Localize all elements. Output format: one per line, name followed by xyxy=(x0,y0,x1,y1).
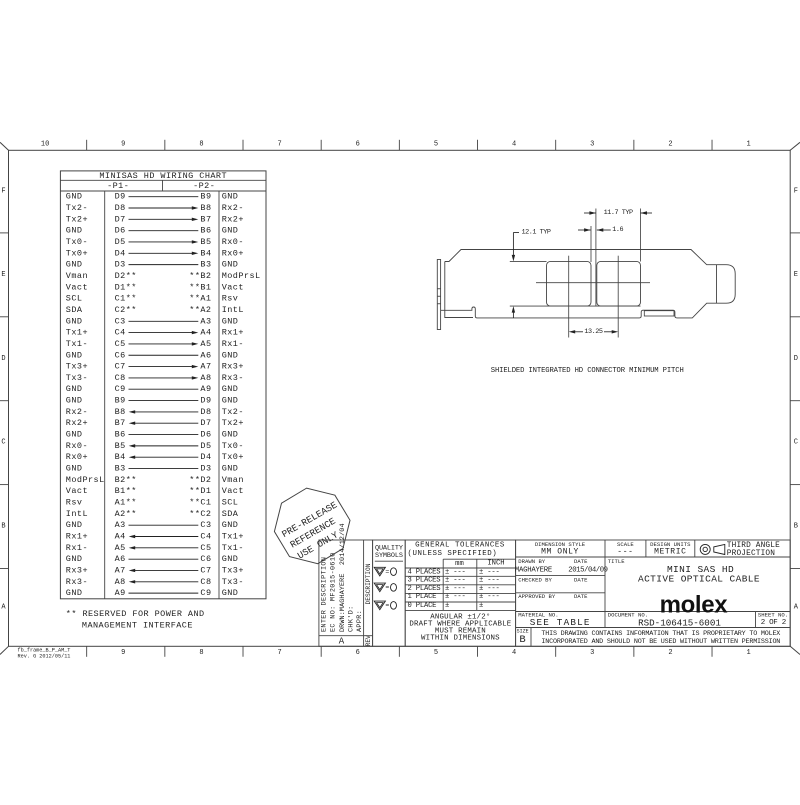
svg-text:WITHIN DIMENSIONS: WITHIN DIMENSIONS xyxy=(421,635,500,643)
svg-text:± ---: ± --- xyxy=(445,593,466,601)
svg-text:Tx2-: Tx2- xyxy=(222,407,244,417)
svg-text:9: 9 xyxy=(121,140,125,148)
svg-text:D9: D9 xyxy=(200,396,211,406)
svg-text:SCL: SCL xyxy=(66,294,83,304)
svg-text:GND: GND xyxy=(222,554,239,564)
svg-text:Tx3+: Tx3+ xyxy=(222,565,244,575)
svg-text:Rx2+: Rx2+ xyxy=(66,418,88,428)
svg-text:Tx0+: Tx0+ xyxy=(66,248,88,258)
svg-text:11.7 TYP: 11.7 TYP xyxy=(604,209,633,217)
svg-text:2 PLACES: 2 PLACES xyxy=(408,585,441,593)
svg-text:=: = xyxy=(385,602,389,609)
svg-text:F: F xyxy=(1,188,5,196)
svg-text:GND: GND xyxy=(222,260,239,270)
svg-text:Tx1-: Tx1- xyxy=(222,543,244,553)
svg-text:GND: GND xyxy=(222,226,239,236)
svg-text:A7: A7 xyxy=(200,362,211,372)
svg-text:± ---: ± --- xyxy=(479,576,500,584)
svg-text:A3: A3 xyxy=(200,316,211,326)
svg-text:Vman: Vman xyxy=(66,271,88,281)
svg-text:B5: B5 xyxy=(115,441,126,451)
svg-text:A4: A4 xyxy=(115,531,126,541)
svg-text:GND: GND xyxy=(66,554,83,564)
svg-text:7: 7 xyxy=(277,140,281,148)
svg-text:C: C xyxy=(794,439,798,447)
svg-text:Tx0+: Tx0+ xyxy=(222,452,244,462)
svg-text:A3: A3 xyxy=(115,520,126,530)
svg-text:TITLE: TITLE xyxy=(608,558,625,565)
svg-text:GND: GND xyxy=(66,260,83,270)
svg-text:Rsv: Rsv xyxy=(222,294,239,304)
svg-text:INCH: INCH xyxy=(487,560,504,568)
svg-text:Rx3+: Rx3+ xyxy=(66,565,88,575)
svg-text:1: 1 xyxy=(747,140,751,148)
svg-text:C4: C4 xyxy=(200,531,211,541)
svg-text:SHIELDED INTEGRATED HD CONNECT: SHIELDED INTEGRATED HD CONNECTOR MINIMUM… xyxy=(491,367,684,375)
svg-text:Tx1+: Tx1+ xyxy=(66,328,88,338)
svg-text:A2**: A2** xyxy=(115,509,137,519)
svg-text:GND: GND xyxy=(222,192,239,202)
svg-text:GND: GND xyxy=(66,396,83,406)
svg-text:C7: C7 xyxy=(115,362,126,372)
svg-text:GND: GND xyxy=(222,430,239,440)
svg-text:DATE: DATE xyxy=(574,558,588,565)
svg-text:5: 5 xyxy=(434,140,438,148)
svg-text:D8: D8 xyxy=(115,203,126,213)
svg-text:B3: B3 xyxy=(115,464,126,474)
svg-text:E: E xyxy=(1,271,5,279)
svg-text:10: 10 xyxy=(41,140,49,148)
svg-text:± ---: ± --- xyxy=(445,585,466,593)
svg-text:C5: C5 xyxy=(115,339,126,349)
svg-text:C8: C8 xyxy=(200,577,211,587)
svg-text:2015/04/09: 2015/04/09 xyxy=(568,566,607,574)
svg-text:Rx2+: Rx2+ xyxy=(222,214,244,224)
svg-text:C2**: C2** xyxy=(115,305,137,315)
svg-text:B6: B6 xyxy=(200,226,211,236)
svg-text:A5: A5 xyxy=(200,339,211,349)
svg-text:GND: GND xyxy=(222,520,239,530)
svg-text:IntL: IntL xyxy=(66,509,88,519)
svg-text:Tx1-: Tx1- xyxy=(66,339,88,349)
svg-text:Rx1+: Rx1+ xyxy=(222,328,244,338)
svg-text:GND: GND xyxy=(66,316,83,326)
svg-text:Rx0-: Rx0- xyxy=(222,237,244,247)
svg-text:Rx2-: Rx2- xyxy=(66,407,88,417)
svg-text:D: D xyxy=(1,355,5,363)
svg-text:Rx3-: Rx3- xyxy=(66,577,88,587)
svg-text:GND: GND xyxy=(66,350,83,360)
svg-text:E: E xyxy=(794,271,798,279)
svg-text:8: 8 xyxy=(199,140,203,148)
svg-text:13.25: 13.25 xyxy=(584,328,603,336)
svg-text:C4: C4 xyxy=(115,328,126,338)
svg-text:A5: A5 xyxy=(115,543,126,553)
svg-text:3: 3 xyxy=(590,140,594,148)
svg-text:Tx2+: Tx2+ xyxy=(66,214,88,224)
svg-text:C8: C8 xyxy=(115,373,126,383)
svg-text:C3: C3 xyxy=(115,316,126,326)
svg-text:Rx0+: Rx0+ xyxy=(66,452,88,462)
svg-text:Rx1+: Rx1+ xyxy=(66,531,88,541)
svg-text:MM ONLY: MM ONLY xyxy=(541,547,579,556)
svg-text:A8: A8 xyxy=(200,373,211,383)
svg-text:1 PLACE: 1 PLACE xyxy=(408,593,437,601)
svg-text:C9: C9 xyxy=(200,588,211,598)
svg-text:Rsv: Rsv xyxy=(66,498,83,508)
svg-text:GND: GND xyxy=(66,588,83,598)
svg-text:Tx2-: Tx2- xyxy=(66,203,88,213)
svg-text:12.1 TYP: 12.1 TYP xyxy=(522,229,551,237)
svg-text:D3: D3 xyxy=(200,464,211,474)
svg-text:Vact: Vact xyxy=(66,282,88,292)
svg-text:METRIC: METRIC xyxy=(654,547,686,556)
svg-text:GND: GND xyxy=(222,396,239,406)
svg-text:B4: B4 xyxy=(200,248,211,258)
svg-text:B: B xyxy=(1,523,5,531)
svg-text:B3: B3 xyxy=(200,260,211,270)
svg-text:GND: GND xyxy=(66,464,83,474)
svg-text:**B1: **B1 xyxy=(189,282,211,292)
svg-text:IntL: IntL xyxy=(222,305,244,315)
svg-text:D8: D8 xyxy=(200,407,211,417)
svg-text:SCL: SCL xyxy=(222,498,239,508)
svg-text:REV: REV xyxy=(365,635,372,646)
svg-text:Rx1-: Rx1- xyxy=(222,339,244,349)
svg-text:6: 6 xyxy=(356,649,360,657)
svg-text:A1**: A1** xyxy=(115,498,137,508)
svg-text:A9: A9 xyxy=(115,588,126,598)
svg-text:Vact: Vact xyxy=(66,486,88,496)
svg-text:0 PLACE: 0 PLACE xyxy=(408,602,437,610)
svg-text:=: = xyxy=(385,584,389,591)
svg-text:RSD-106415-6001: RSD-106415-6001 xyxy=(638,617,721,628)
svg-text:-P2-: -P2- xyxy=(193,181,215,191)
svg-text:GND: GND xyxy=(222,384,239,394)
svg-text:± ---: ± --- xyxy=(479,593,500,601)
svg-text:APPR:: APPR: xyxy=(356,610,364,632)
svg-text:Tx1+: Tx1+ xyxy=(222,531,244,541)
svg-text:A9: A9 xyxy=(200,384,211,394)
svg-text:**A2: **A2 xyxy=(189,305,211,315)
svg-text:-P1-: -P1- xyxy=(107,181,129,191)
svg-text:**C1: **C1 xyxy=(189,498,211,508)
svg-text:B: B xyxy=(794,523,798,531)
svg-text:B9: B9 xyxy=(115,396,126,406)
svg-text:C1**: C1** xyxy=(115,294,137,304)
svg-text:B7: B7 xyxy=(200,214,211,224)
svg-text:Vman: Vman xyxy=(222,475,244,485)
svg-text:9: 9 xyxy=(121,649,125,657)
svg-text:± ---: ± --- xyxy=(445,568,466,576)
svg-text:C6: C6 xyxy=(200,554,211,564)
svg-text:Rx0+: Rx0+ xyxy=(222,248,244,258)
svg-text:B6: B6 xyxy=(115,430,126,440)
svg-text:GND: GND xyxy=(66,520,83,530)
svg-text:±: ± xyxy=(479,602,483,610)
svg-text:ModPrsL: ModPrsL xyxy=(222,271,261,281)
svg-text:GND: GND xyxy=(222,350,239,360)
svg-text:D9: D9 xyxy=(115,192,126,202)
svg-text:B4: B4 xyxy=(115,452,126,462)
svg-text:6: 6 xyxy=(356,140,360,148)
svg-text:C6: C6 xyxy=(115,350,126,360)
svg-text:Rx0-: Rx0- xyxy=(66,441,88,451)
svg-text:**A1: **A1 xyxy=(189,294,211,304)
svg-text:GND: GND xyxy=(222,464,239,474)
svg-text:MAGHAYERE: MAGHAYERE xyxy=(515,566,552,574)
svg-text:7: 7 xyxy=(277,649,281,657)
svg-text:C3: C3 xyxy=(200,520,211,530)
svg-text:DESCRIPTION: DESCRIPTION xyxy=(365,563,372,604)
svg-text:C5: C5 xyxy=(200,543,211,553)
svg-text:F: F xyxy=(794,188,798,196)
svg-text:**C2: **C2 xyxy=(189,509,211,519)
svg-text:GENERAL TOLERANCES: GENERAL TOLERANCES xyxy=(415,542,505,550)
svg-text:D6: D6 xyxy=(200,430,211,440)
svg-text:ENTER DESCRIPTION: ENTER DESCRIPTION xyxy=(321,557,329,632)
svg-text:D3: D3 xyxy=(115,260,126,270)
svg-text:PROJECTION: PROJECTION xyxy=(727,550,775,558)
svg-text:± ---: ± --- xyxy=(479,585,500,593)
svg-text:Tx3-: Tx3- xyxy=(66,373,88,383)
svg-text:Rx1-: Rx1- xyxy=(66,543,88,553)
svg-text:GND: GND xyxy=(66,430,83,440)
svg-text:A7: A7 xyxy=(115,565,126,575)
svg-text:DATE: DATE xyxy=(574,593,588,600)
svg-text:=: = xyxy=(385,568,389,575)
svg-text:DATE: DATE xyxy=(574,577,588,584)
svg-text:3: 3 xyxy=(590,649,594,657)
svg-text:GND: GND xyxy=(66,384,83,394)
svg-text:4: 4 xyxy=(512,140,516,148)
svg-text:B5: B5 xyxy=(200,237,211,247)
svg-text:GND: GND xyxy=(66,192,83,202)
svg-text:D7: D7 xyxy=(200,418,211,428)
svg-text:Tx3+: Tx3+ xyxy=(66,362,88,372)
svg-text:B1**: B1** xyxy=(115,486,137,496)
svg-text:Vact: Vact xyxy=(222,282,244,292)
svg-text:4 PLACES: 4 PLACES xyxy=(408,568,441,576)
svg-text:SDA: SDA xyxy=(222,509,239,519)
svg-text:MINISAS HD WIRING CHART: MINISAS HD WIRING CHART xyxy=(99,171,227,181)
svg-text:1: 1 xyxy=(747,649,751,657)
svg-text:**B2: **B2 xyxy=(189,271,211,281)
svg-text:GND: GND xyxy=(222,316,239,326)
svg-text:Tx0-: Tx0- xyxy=(66,237,88,247)
svg-text:A6: A6 xyxy=(200,350,211,360)
svg-text:C9: C9 xyxy=(115,384,126,394)
svg-text:MANAGEMENT INTERFACE: MANAGEMENT INTERFACE xyxy=(82,621,193,631)
svg-text:ACTIVE OPTICAL CABLE: ACTIVE OPTICAL CABLE xyxy=(638,573,760,584)
svg-text:A4: A4 xyxy=(200,328,211,338)
svg-text:D2**: D2** xyxy=(115,271,137,281)
svg-text:SYMBOLS: SYMBOLS xyxy=(375,552,403,560)
svg-text:Rev. G 2012/05/11: Rev. G 2012/05/11 xyxy=(18,653,71,659)
svg-text:A8: A8 xyxy=(115,577,126,587)
svg-text:ModPrsL: ModPrsL xyxy=(66,475,105,485)
svg-text:2: 2 xyxy=(668,649,672,657)
svg-text:3 PLACES: 3 PLACES xyxy=(408,576,441,584)
svg-text:C: C xyxy=(1,439,5,447)
svg-text:Rx2-: Rx2- xyxy=(222,203,244,213)
svg-text:CHK'D:: CHK'D: xyxy=(348,605,356,632)
svg-text:SEE TABLE: SEE TABLE xyxy=(530,617,591,628)
svg-text:APPROVED BY: APPROVED BY xyxy=(518,593,556,600)
svg-text:CHECKED BY: CHECKED BY xyxy=(518,577,552,584)
svg-text:D4: D4 xyxy=(200,452,211,462)
svg-text:Tx2+: Tx2+ xyxy=(222,418,244,428)
svg-text:D6: D6 xyxy=(115,226,126,236)
svg-text:GND: GND xyxy=(66,226,83,236)
svg-text:± ---: ± --- xyxy=(479,568,500,576)
svg-text:B: B xyxy=(519,634,525,646)
svg-text:5: 5 xyxy=(434,649,438,657)
svg-text:1.6: 1.6 xyxy=(612,226,623,234)
svg-text:B7: B7 xyxy=(115,418,126,428)
svg-text:A6: A6 xyxy=(115,554,126,564)
svg-text:SDA: SDA xyxy=(66,305,83,315)
svg-text:Vact: Vact xyxy=(222,486,244,496)
svg-text:molex: molex xyxy=(660,592,729,619)
svg-text:D7: D7 xyxy=(115,214,126,224)
svg-text:Rx3-: Rx3- xyxy=(222,373,244,383)
svg-text:**D2: **D2 xyxy=(189,475,211,485)
svg-text:EC NO: MF2015-0610: EC NO: MF2015-0610 xyxy=(330,552,338,632)
svg-text:8: 8 xyxy=(199,649,203,657)
svg-text:Tx3-: Tx3- xyxy=(222,577,244,587)
svg-text:---: --- xyxy=(617,547,633,556)
svg-text:2: 2 xyxy=(668,140,672,148)
svg-text:± ---: ± --- xyxy=(445,576,466,584)
svg-text:**D1: **D1 xyxy=(189,486,211,496)
svg-text:THIS DRAWING CONTAINS INFORMAT: THIS DRAWING CONTAINS INFORMATION THAT I… xyxy=(541,630,780,638)
svg-text:A: A xyxy=(339,636,345,646)
svg-text:DRWN:MAGHAYERE 2014/12/04: DRWN:MAGHAYERE 2014/12/04 xyxy=(339,523,347,632)
svg-text:Tx0-: Tx0- xyxy=(222,441,244,451)
svg-text:GND: GND xyxy=(222,588,239,598)
svg-text:** RESERVED FOR POWER AND: ** RESERVED FOR POWER AND xyxy=(66,609,205,619)
svg-text:4: 4 xyxy=(512,649,516,657)
svg-text:2 OF 2: 2 OF 2 xyxy=(761,619,786,627)
svg-text:mm: mm xyxy=(455,560,464,568)
svg-text:(UNLESS SPECIFIED): (UNLESS SPECIFIED) xyxy=(408,550,498,558)
svg-text:D: D xyxy=(794,355,798,363)
svg-text:B2**: B2** xyxy=(115,475,137,485)
svg-text:B8: B8 xyxy=(200,203,211,213)
svg-text:DRAWN BY: DRAWN BY xyxy=(518,558,545,565)
svg-text:Rx3+: Rx3+ xyxy=(222,362,244,372)
svg-text:B8: B8 xyxy=(115,407,126,417)
svg-text:D4: D4 xyxy=(115,248,126,258)
svg-text:SHEET NO.: SHEET NO. xyxy=(758,611,788,618)
svg-text:±: ± xyxy=(445,602,449,610)
svg-text:INCORPORATED AND SHOULD NOT BE: INCORPORATED AND SHOULD NOT BE USED WITH… xyxy=(541,638,780,646)
svg-text:D1**: D1** xyxy=(115,282,137,292)
svg-text:C7: C7 xyxy=(200,565,211,575)
svg-text:D5: D5 xyxy=(200,441,211,451)
svg-text:B9: B9 xyxy=(200,192,211,202)
svg-text:D5: D5 xyxy=(115,237,126,247)
